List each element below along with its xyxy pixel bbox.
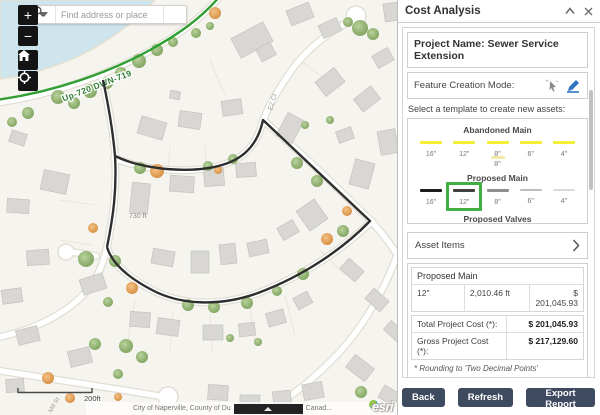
map-attribution: City of Naperville, County of Du Canad..… xyxy=(86,402,397,415)
attribution-toggle[interactable] xyxy=(234,404,303,414)
line-swatch xyxy=(487,189,509,192)
draw-tool-button[interactable] xyxy=(565,78,581,93)
refresh-button[interactable]: Refresh xyxy=(458,388,513,407)
group-header-abandoned: Abandoned Main xyxy=(414,125,581,135)
template-abandoned-16[interactable]: 16" xyxy=(416,137,446,160)
asset-length: 2,010.46 ft xyxy=(465,285,531,311)
esri-logo: esri xyxy=(369,399,393,414)
panel-header: Cost Analysis xyxy=(398,0,600,23)
panel-title: Cost Analysis xyxy=(405,5,481,17)
line-swatch xyxy=(420,141,442,144)
magic-cursor-icon xyxy=(545,78,560,93)
totals-table: Total Project Cost (*): $ 201,045.93 Gro… xyxy=(411,315,584,360)
group-header-valves: Proposed Valves xyxy=(414,214,581,224)
group-header-proposed: Proposed Main xyxy=(414,173,581,183)
select-tool-button[interactable] xyxy=(545,78,560,93)
section-asset-items[interactable]: Asset Items xyxy=(407,232,588,259)
trees-layer xyxy=(7,7,379,403)
template-abandoned-4[interactable]: 4" xyxy=(549,137,579,160)
cul-de-sac-fill xyxy=(60,246,72,258)
template-proposed-4[interactable]: 4" xyxy=(549,185,579,208)
gross-cost-row: Gross Project Cost (*): $ 217,129.60 xyxy=(412,332,583,359)
template-proposed-6[interactable]: 6" xyxy=(516,185,546,208)
zoom-in-button[interactable]: + xyxy=(18,5,38,25)
attribution-text-left: City of Naperville, County of Du xyxy=(133,405,231,412)
feature-mode-label: Feature Creation Mode: xyxy=(414,80,514,91)
map-canvas[interactable]: Up-720 DWN-719 730 ft EZ Ct Mill St 200f… xyxy=(0,0,397,415)
asset-cost: $ 201,045.93 xyxy=(530,285,583,311)
asset-table: Proposed Main 12" 2,010.46 ft $ 201,045.… xyxy=(411,267,584,312)
line-swatch xyxy=(553,189,575,191)
rounding-note: * Rounding to 'Two Decimal Points' xyxy=(411,360,584,374)
search-button[interactable] xyxy=(163,6,186,23)
close-icon xyxy=(584,7,593,16)
collapse-button[interactable] xyxy=(565,7,575,15)
distance-label: 730 ft xyxy=(129,213,147,220)
chevron-up-icon xyxy=(565,7,575,15)
locate-button[interactable] xyxy=(18,71,38,91)
asset-size: 12" xyxy=(412,285,465,311)
search-bar[interactable] xyxy=(32,5,187,24)
back-button[interactable]: Back xyxy=(402,388,445,407)
cost-analysis-panel: Cost Analysis Project Name: Sewer Servic… xyxy=(397,0,600,415)
line-swatch xyxy=(453,141,475,144)
line-swatch xyxy=(553,141,575,144)
total-cost-row: Total Project Cost (*): $ 201,045.93 xyxy=(412,316,583,332)
street-label-ez: EZ Ct xyxy=(267,93,279,111)
close-button[interactable] xyxy=(584,7,593,16)
attribution-text-right: Canad... xyxy=(306,405,332,412)
line-swatch xyxy=(487,141,509,144)
template-gallery: Abandoned Main 16" 12" 8" 6" xyxy=(407,118,588,224)
pencil-icon xyxy=(565,78,581,93)
chevron-right-icon xyxy=(572,239,580,252)
home-icon xyxy=(18,50,30,61)
template-abandoned-6[interactable]: 6" xyxy=(516,137,546,160)
template-abandoned-8b[interactable]: 8" xyxy=(483,156,513,170)
export-report-button[interactable]: Export Report xyxy=(526,388,595,407)
project-name-heading: Project Name: Sewer Service Extension xyxy=(407,32,588,68)
template-proposed-8[interactable]: 8" xyxy=(483,185,513,208)
template-instruction: Select a template to create new assets: xyxy=(408,104,587,114)
line-swatch xyxy=(453,189,475,192)
street-label-mill: Mill St xyxy=(48,396,62,413)
table-row: 12" 2,010.46 ft $ 201,045.93 xyxy=(412,285,583,311)
chevron-up-icon xyxy=(264,407,272,411)
zoom-out-button[interactable]: − xyxy=(18,26,38,46)
cost-results: Proposed Main 12" 2,010.46 ft $ 201,045.… xyxy=(407,263,588,378)
template-abandoned-12[interactable]: 12" xyxy=(449,137,479,160)
panel-scrollbar[interactable] xyxy=(589,90,593,190)
search-input[interactable] xyxy=(56,6,163,23)
home-button[interactable] xyxy=(18,50,38,70)
asset-table-header: Proposed Main xyxy=(412,268,583,285)
line-swatch xyxy=(520,141,542,144)
total-cost-value: $ 201,045.93 xyxy=(507,316,583,332)
line-swatch xyxy=(491,156,505,159)
gross-cost-value: $ 217,129.60 xyxy=(507,333,583,359)
line-swatch xyxy=(520,189,542,191)
template-proposed-16[interactable]: 16" xyxy=(416,185,446,208)
panel-content: Project Name: Sewer Service Extension Fe… xyxy=(402,27,595,378)
proposed-row: 16" 12" 8" 6" 4" xyxy=(414,185,581,208)
panel-buttons: Back Refresh Export Report xyxy=(402,388,595,407)
template-proposed-12-selected[interactable]: 12" xyxy=(446,182,482,211)
feature-mode-row: Feature Creation Mode: xyxy=(407,72,588,99)
locate-icon xyxy=(18,71,31,84)
basemap: Up-720 DWN-719 730 ft EZ Ct Mill St 200f… xyxy=(0,0,397,415)
line-swatch xyxy=(420,189,442,192)
